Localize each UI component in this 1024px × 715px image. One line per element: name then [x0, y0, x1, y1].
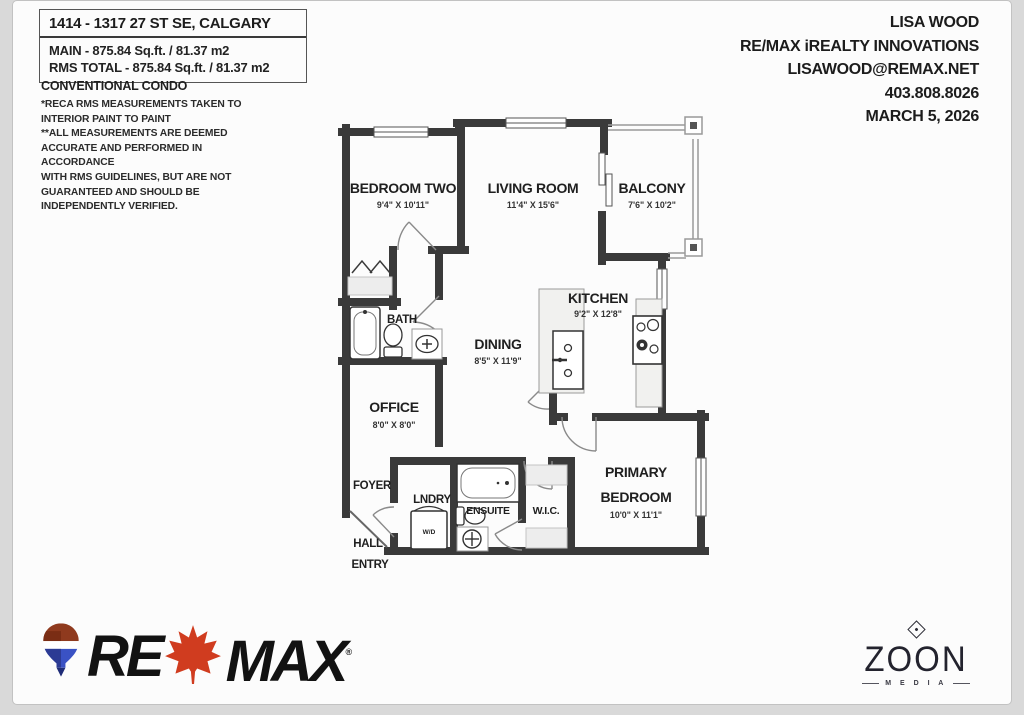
remax-balloon-icon — [41, 622, 81, 678]
room-dims-office: 8'0" X 8'0" — [373, 420, 416, 430]
remax-wordmark-max: MAX® — [226, 613, 353, 701]
room-label-laundry: LNDRY — [413, 494, 451, 506]
room-label-living-room: LIVING ROOM — [488, 180, 579, 196]
disclaimer-line: *RECA RMS MEASUREMENTS TAKEN TO — [41, 98, 276, 113]
floor-plan-drawing: BEDROOM TWO 9'4" X 10'11" LIVING ROOM 11… — [336, 111, 721, 581]
balcony-sliding-door — [599, 153, 612, 206]
room-label-foyer: FOYER — [353, 480, 392, 492]
sink-main — [412, 329, 442, 359]
disclaimer-line: INDEPENDENTLY VERIFIED. — [41, 200, 276, 215]
room-label-ensuite: ENSUITE — [466, 505, 510, 517]
rms-total-area: RMS TOTAL - 875.84 Sq.ft. / 81.37 m2 — [49, 59, 297, 76]
bathtub-main — [350, 307, 380, 359]
main-area: MAIN - 875.84 Sq.ft. / 81.37 m2 — [49, 42, 297, 59]
room-dims-dining: 8'5" X 11'9" — [474, 356, 521, 366]
room-label-primary-line2: BEDROOM — [600, 489, 671, 505]
agent-phone: 403.808.8026 — [740, 82, 979, 106]
disclaimer-line: GUARANTEED AND SHOULD BE — [41, 186, 276, 201]
disclaimer-block: CONVENTIONAL CONDO *RECA RMS MEASUREMENT… — [41, 79, 276, 215]
zoon-diamond-icon — [907, 620, 925, 638]
room-label-office: OFFICE — [369, 399, 419, 415]
property-address: 1414 - 1317 27 ST SE, CALGARY — [40, 10, 306, 38]
label-entry: ENTRY — [351, 559, 389, 571]
agent-contact-block: LISA WOOD RE/MAX iREALTY INNOVATIONS LIS… — [740, 11, 979, 129]
toilet-main — [384, 324, 402, 357]
maple-leaf-icon — [162, 623, 224, 685]
property-type: CONVENTIONAL CONDO — [41, 79, 276, 93]
property-info-box: 1414 - 1317 27 ST SE, CALGARY MAIN - 875… — [39, 9, 307, 83]
label-hall: HALL — [353, 538, 383, 550]
room-dims-balcony: 7'6" X 10'2" — [628, 200, 676, 210]
room-label-dining: DINING — [474, 336, 522, 352]
disclaimer-line: ACCURATE AND PERFORMED IN ACCORDANCE — [41, 142, 276, 171]
stove — [633, 316, 662, 364]
zoon-wordmark: ZOON — [851, 638, 981, 679]
label-washer-dryer: W/D — [423, 529, 436, 536]
room-dims-primary: 10'0" X 11'1" — [610, 510, 662, 520]
room-label-primary-line1: PRIMARY — [605, 464, 668, 480]
trademark-mark: ® — [345, 647, 352, 657]
room-label-bath: BATH — [387, 314, 417, 326]
bathtub-ensuite — [457, 464, 519, 502]
washer-dryer — [411, 507, 447, 550]
remax-logo: RE MAX® — [41, 613, 352, 701]
room-label-balcony: BALCONY — [618, 180, 686, 196]
agent-brokerage: RE/MAX iREALTY INNOVATIONS — [740, 35, 979, 59]
area-measurements: MAIN - 875.84 Sq.ft. / 81.37 m2 RMS TOTA… — [40, 38, 306, 82]
disclaimer-line: WITH RMS GUIDELINES, BUT ARE NOT — [41, 171, 276, 186]
page-background: 1414 - 1317 27 ST SE, CALGARY MAIN - 875… — [12, 0, 1012, 705]
closet-bedroom-two — [348, 261, 392, 295]
disclaimer-line: **ALL MEASUREMENTS ARE DEEMED — [41, 127, 276, 142]
room-dims-living-room: 11'4" X 15'6" — [507, 200, 559, 210]
floor-plan-page: 1414 - 1317 27 ST SE, CALGARY MAIN - 875… — [0, 0, 1024, 715]
remax-wordmark-re: RE — [87, 618, 162, 696]
disclaimer-line: INTERIOR PAINT TO PAINT — [41, 113, 276, 128]
zoon-media-label: M E D I A — [885, 680, 947, 687]
room-dims-kitchen: 9'2" X 12'8" — [574, 309, 622, 319]
room-label-wic: W.I.C. — [533, 505, 560, 517]
room-label-bedroom-two: BEDROOM TWO — [350, 180, 457, 196]
agent-email: LISAWOOD@REMAX.NET — [740, 58, 979, 82]
room-label-kitchen: KITCHEN — [568, 290, 628, 306]
sink-ensuite — [457, 527, 488, 551]
zoon-media-sub: M E D I A — [851, 680, 981, 687]
room-dims-bedroom-two: 9'4" X 10'11" — [377, 200, 429, 210]
plan-date: MARCH 5, 2026 — [740, 105, 979, 129]
zoon-media-logo: ZOON M E D I A — [851, 623, 981, 687]
agent-name: LISA WOOD — [740, 11, 979, 35]
